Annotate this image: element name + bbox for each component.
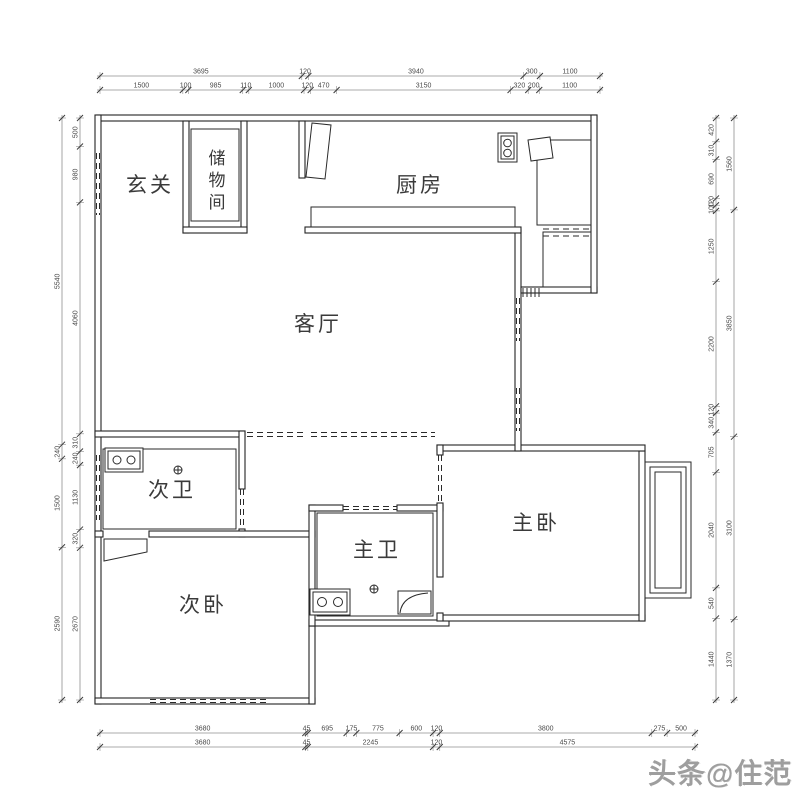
svg-text:1100: 1100: [562, 69, 577, 76]
svg-text:120: 120: [431, 726, 443, 733]
svg-text:3680: 3680: [195, 740, 211, 747]
svg-text:1440: 1440: [709, 651, 716, 667]
room-label-entry: 玄关: [126, 169, 174, 199]
svg-text:200: 200: [528, 83, 540, 90]
svg-text:1000: 1000: [269, 83, 285, 90]
balcony-door-swing: [528, 137, 553, 161]
svg-text:120: 120: [709, 404, 716, 416]
svg-text:500: 500: [675, 726, 687, 733]
svg-text:2040: 2040: [709, 522, 716, 538]
svg-text:1250: 1250: [709, 238, 716, 254]
bedroom2-door-swing: [104, 539, 147, 561]
svg-text:2200: 2200: [709, 336, 716, 352]
svg-text:100: 100: [180, 83, 192, 90]
bay-window: [645, 462, 691, 598]
svg-text:1500: 1500: [55, 495, 62, 511]
svg-text:3940: 3940: [408, 69, 424, 76]
svg-text:3150: 3150: [416, 83, 432, 90]
room-label-living: 客厅: [294, 308, 342, 338]
bath2-floor-drain-icon: [174, 466, 182, 474]
svg-text:4575: 4575: [560, 740, 576, 747]
svg-text:1560: 1560: [727, 156, 734, 172]
svg-text:100: 100: [709, 202, 716, 214]
svg-text:2245: 2245: [363, 740, 379, 747]
room-label-kitchen: 厨房: [396, 169, 444, 199]
bath1-sink-icon: [310, 589, 350, 615]
bath1-door-swing: [398, 591, 431, 614]
svg-text:340: 340: [709, 417, 716, 429]
svg-text:320: 320: [73, 533, 80, 545]
svg-text:1500: 1500: [134, 83, 150, 90]
bath1-floor-drain-icon: [370, 585, 378, 593]
svg-text:3680: 3680: [195, 726, 211, 733]
svg-text:45: 45: [303, 726, 311, 733]
svg-text:45: 45: [303, 740, 311, 747]
svg-text:600: 600: [410, 726, 422, 733]
svg-text:275: 275: [654, 726, 666, 733]
svg-text:980: 980: [73, 168, 80, 180]
svg-text:2590: 2590: [55, 616, 62, 632]
stove-icon: [498, 133, 517, 162]
room-label-storage: 储物间: [203, 149, 228, 215]
floorplan-drawing: 3695120394030011001500100985110100012047…: [0, 0, 800, 800]
svg-text:1100: 1100: [562, 83, 577, 90]
svg-text:120: 120: [302, 83, 314, 90]
svg-text:540: 540: [709, 597, 716, 609]
svg-text:240: 240: [55, 446, 62, 458]
room-label-bath1: 主卫: [353, 534, 401, 564]
floorplan-page: 3695120394030011001500100985110100012047…: [0, 0, 800, 800]
svg-text:310: 310: [709, 145, 716, 157]
svg-text:3695: 3695: [193, 69, 209, 76]
room-label-bath2: 次卫: [148, 474, 196, 504]
svg-text:120: 120: [431, 740, 443, 747]
svg-text:310: 310: [73, 437, 80, 449]
svg-text:775: 775: [372, 726, 384, 733]
svg-text:2670: 2670: [73, 616, 80, 632]
svg-text:320: 320: [514, 83, 526, 90]
svg-text:500: 500: [73, 126, 80, 138]
svg-text:470: 470: [318, 83, 330, 90]
svg-text:695: 695: [321, 726, 333, 733]
svg-text:120: 120: [299, 69, 311, 76]
svg-text:985: 985: [210, 83, 222, 90]
svg-text:110: 110: [240, 83, 251, 90]
room-label-bed1: 主卧: [512, 507, 560, 537]
svg-text:240: 240: [73, 452, 80, 464]
svg-text:1370: 1370: [727, 652, 734, 668]
bath2-sink-icon: [105, 448, 143, 472]
svg-text:175: 175: [346, 726, 358, 733]
room-label-bed2: 次卧: [179, 589, 227, 619]
svg-text:5540: 5540: [55, 273, 62, 289]
svg-text:300: 300: [526, 69, 538, 76]
entry-door-swing: [306, 123, 331, 179]
svg-text:690: 690: [709, 173, 716, 185]
svg-text:3800: 3800: [538, 726, 554, 733]
svg-text:3100: 3100: [727, 520, 734, 536]
svg-text:1130: 1130: [73, 490, 80, 505]
svg-text:420: 420: [709, 124, 716, 136]
svg-text:3850: 3850: [727, 315, 734, 331]
watermark-text: 头条@住范儿: [648, 752, 800, 800]
svg-text:4060: 4060: [73, 310, 80, 326]
svg-text:705: 705: [709, 446, 716, 458]
